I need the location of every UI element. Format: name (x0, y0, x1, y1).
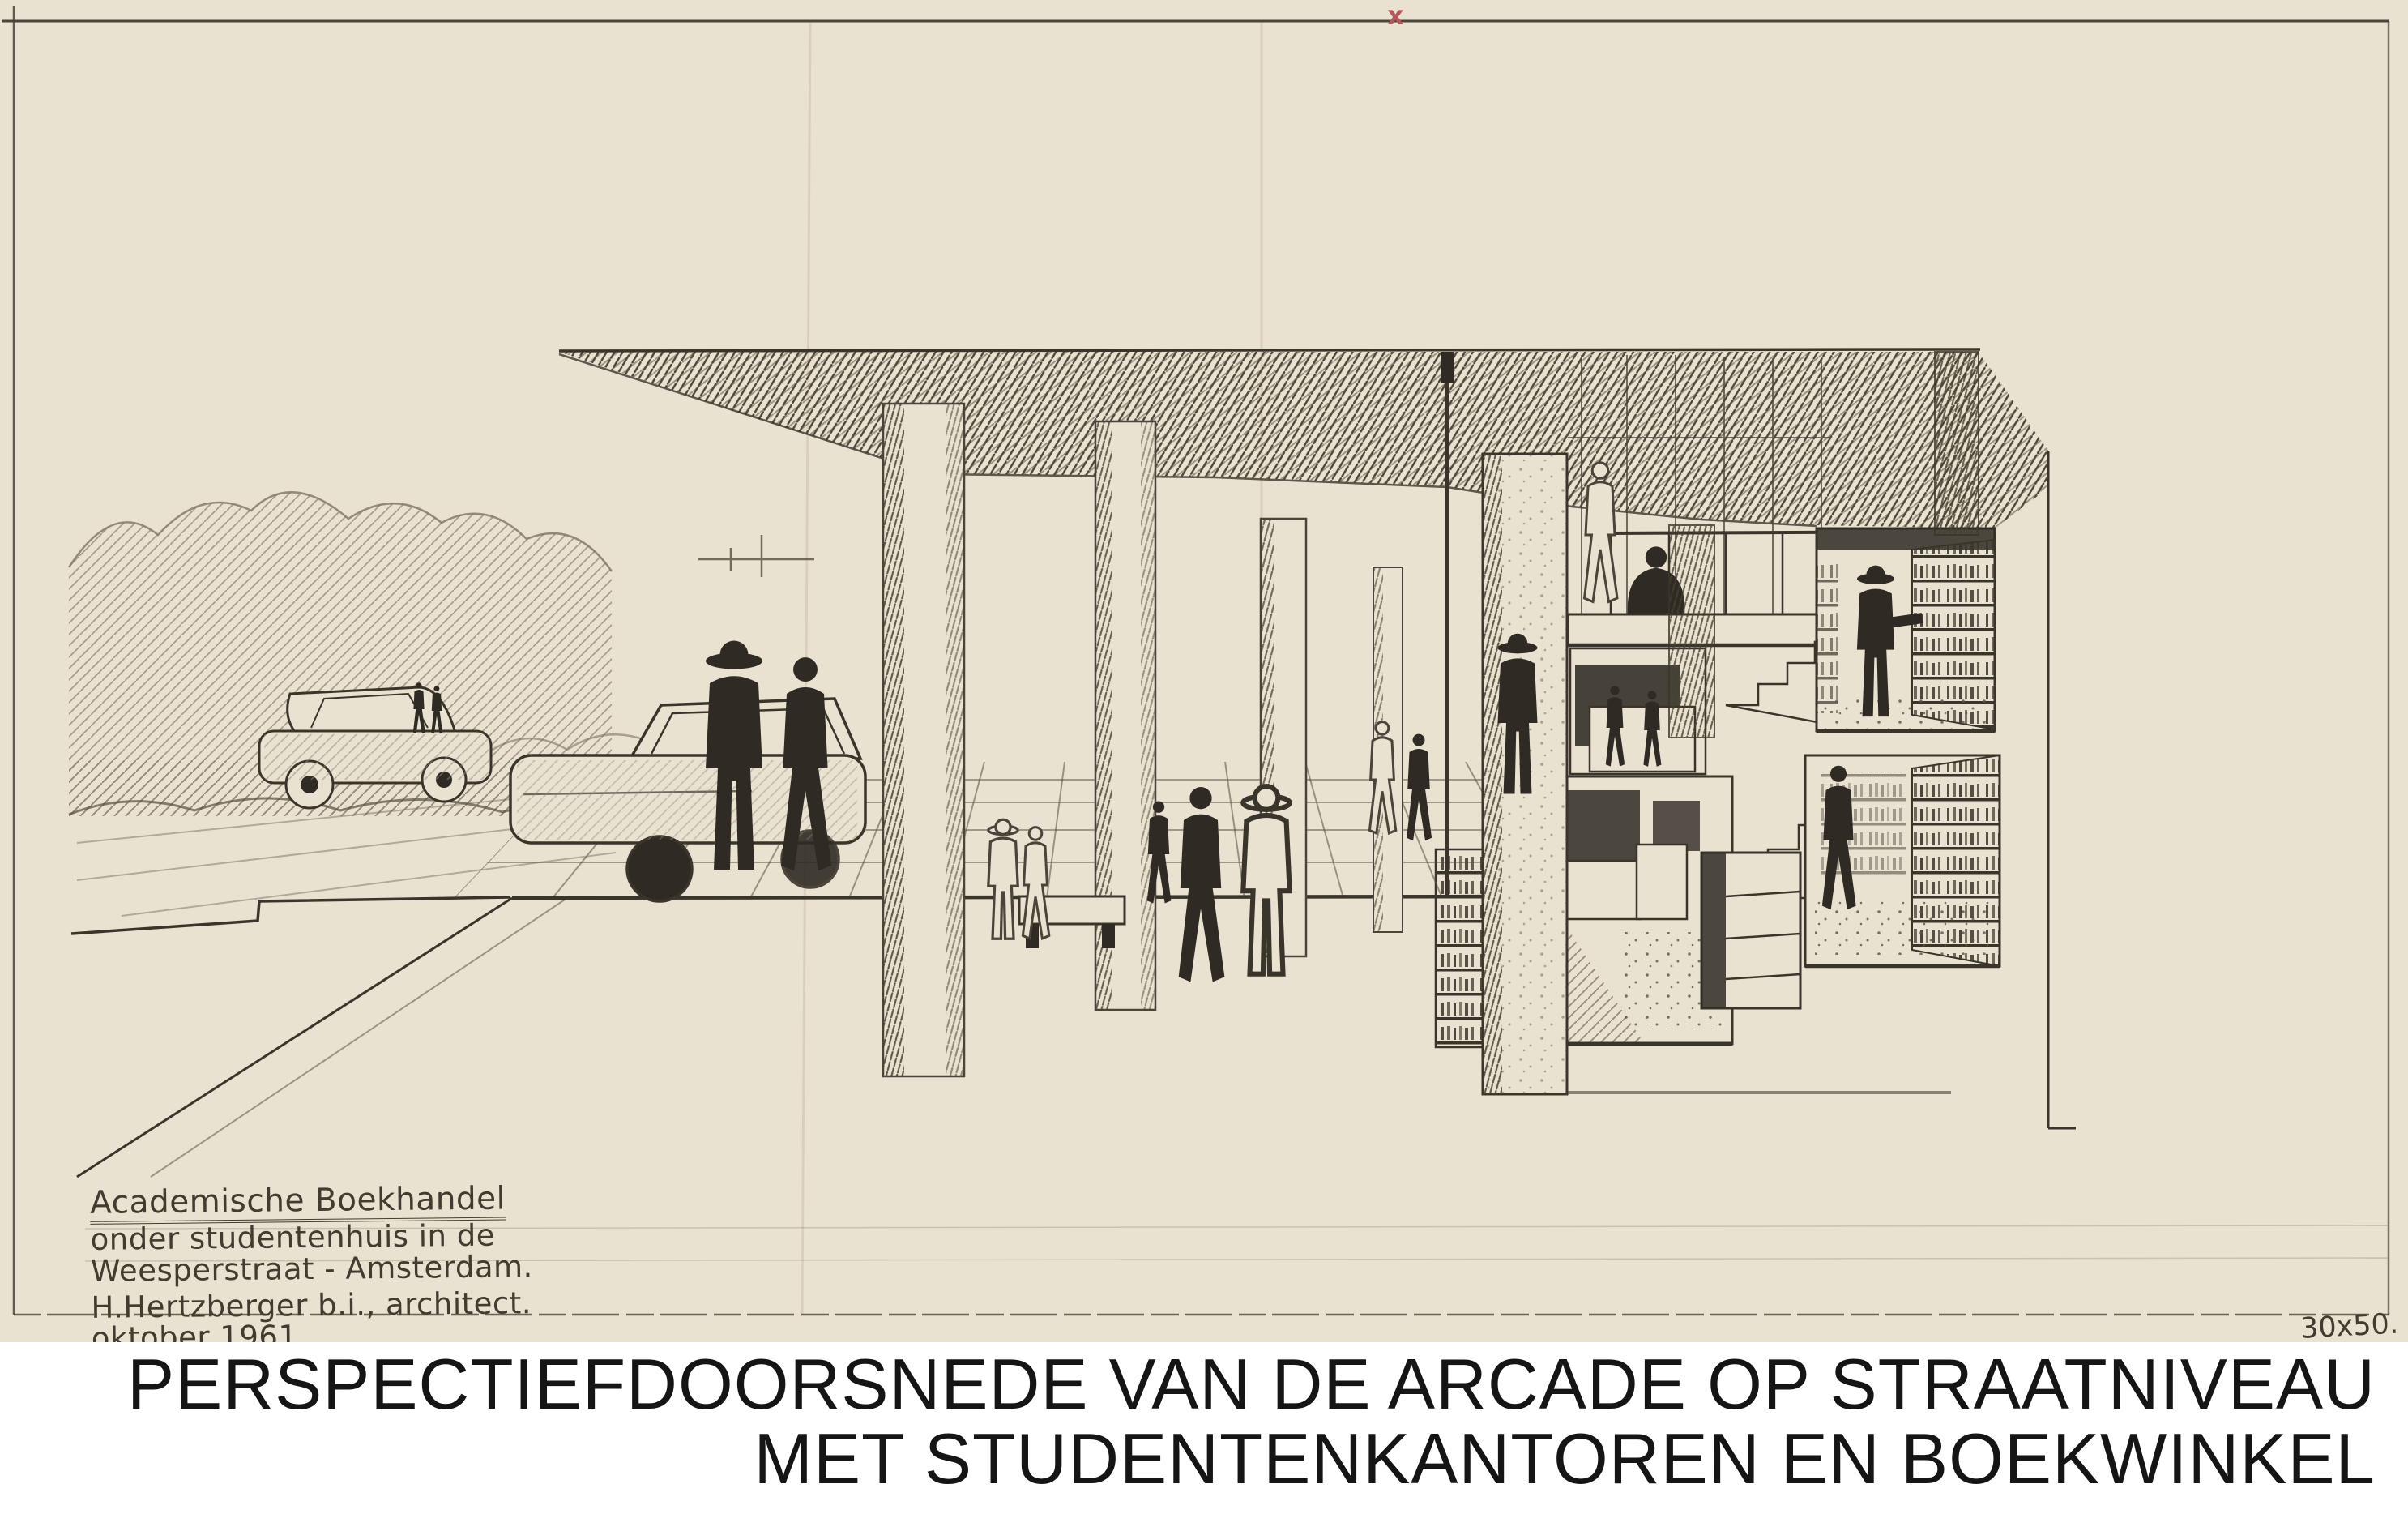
caption-line-2: MET STUDENTENKANTOREN EN BOEKWINKEL (127, 1422, 2376, 1496)
scanned-drawing-sheet: Academische Boekhandel onder studentenhu… (0, 0, 2408, 1514)
bookshop-upper-room (1817, 528, 1995, 731)
arcade-walker (1179, 787, 1225, 982)
background-guide-line (698, 535, 814, 577)
paper-sheet: Academische Boekhandel onder studentenhu… (0, 0, 2408, 1342)
arcade-walker (1407, 734, 1432, 841)
caption-text: PERSPECTIEFDOORSNEDE VAN DE ARCADE OP ST… (127, 1347, 2376, 1495)
floor-speckle (1823, 695, 1990, 729)
bookshop-lower-room (1805, 755, 2000, 966)
window-opening (1653, 801, 1700, 851)
perspective-section-sketch (0, 0, 2408, 1342)
desk (1637, 845, 1687, 919)
bookshelf-edge (1817, 559, 1838, 713)
hatched-pier (1669, 525, 1714, 738)
hatched-column-top (1935, 352, 1979, 535)
street-curb-steps (71, 897, 567, 1177)
caption-band: PERSPECTIEFDOORSNEDE VAN DE ARCADE OP ST… (0, 1342, 2408, 1514)
arcade-column (883, 404, 964, 1076)
floor-speckle (1815, 900, 1990, 955)
paper-fold-lines (802, 21, 1262, 1315)
title-block-architect: H.Hertzberger b.i., architect. (91, 1288, 533, 1324)
caption-line-1: PERSPECTIEFDOORSNEDE VAN DE ARCADE OP ST… (127, 1347, 2376, 1422)
desk (1556, 861, 1640, 919)
title-block-line: Weesperstraat - Amsterdam. (91, 1251, 533, 1288)
outlined-figure (988, 819, 1018, 939)
title-block: Academische Boekhandel onder studentenhu… (90, 1183, 534, 1355)
canopy-soffit-hatching (559, 349, 2048, 528)
registration-mark: x (1387, 0, 1404, 31)
cabinet-unit (1701, 853, 1800, 1008)
section-cut-line (2048, 451, 2076, 1128)
